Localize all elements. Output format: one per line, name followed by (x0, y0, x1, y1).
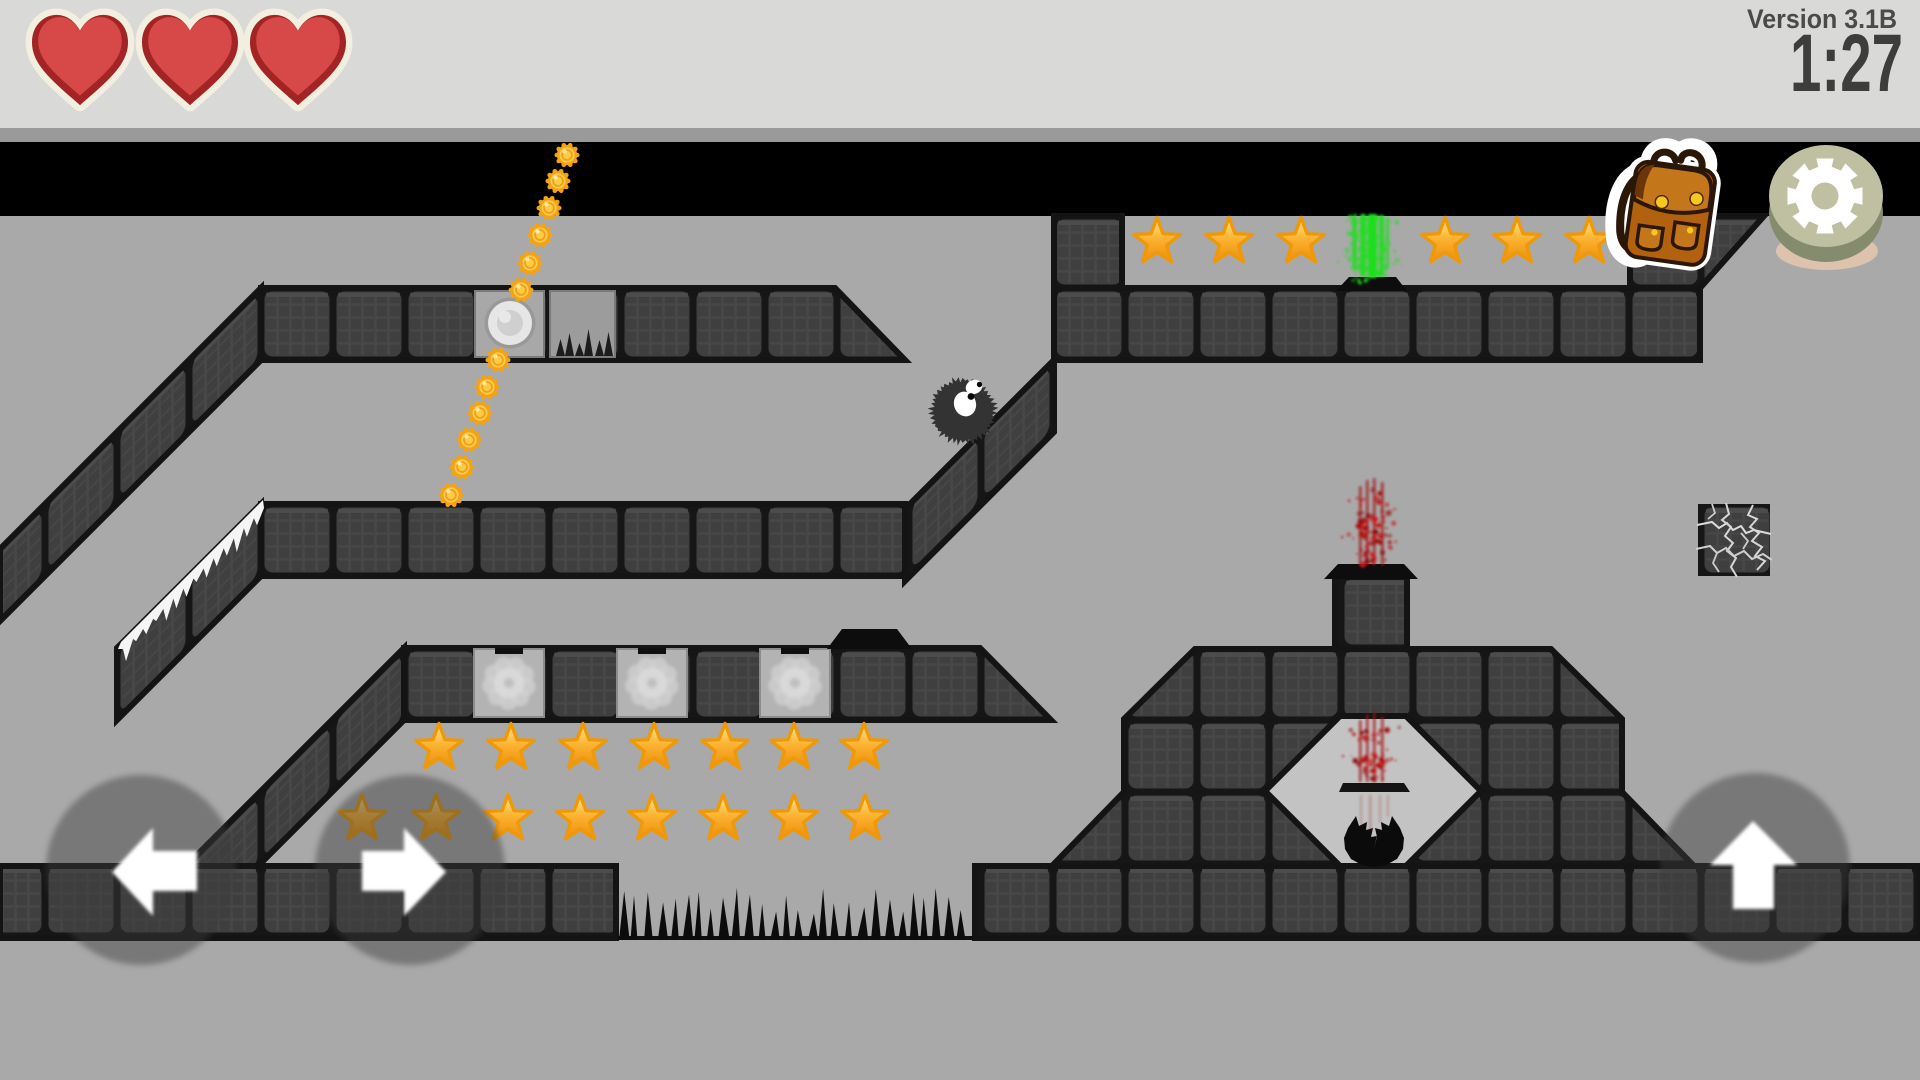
svg-text:1:27: 1:27 (1790, 18, 1903, 109)
